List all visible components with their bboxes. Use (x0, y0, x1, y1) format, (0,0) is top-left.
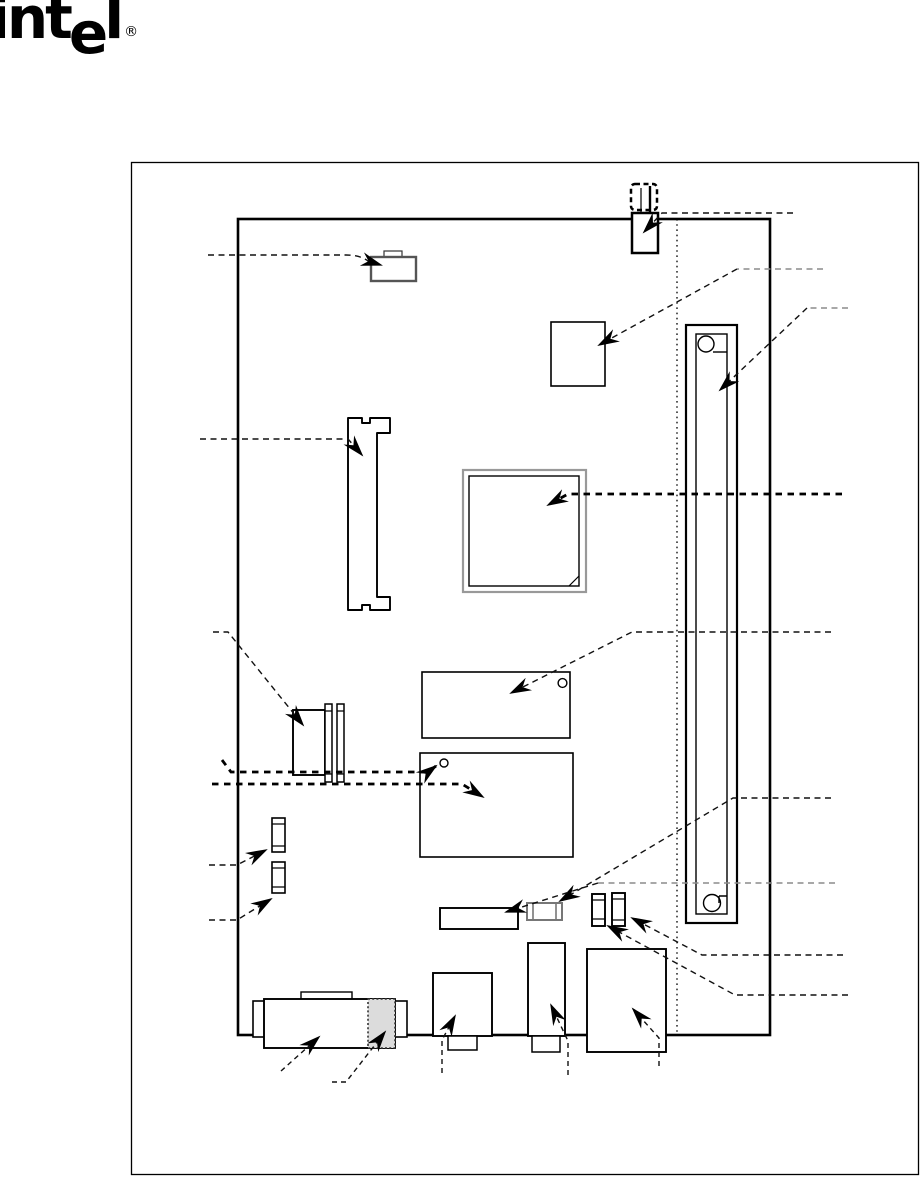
slot-inner (696, 334, 727, 914)
floppy-bar-2 (337, 704, 344, 782)
flash-chip (422, 672, 570, 738)
jumper-1-body (592, 894, 605, 926)
flash-chip-body (422, 672, 570, 738)
capacitor-1-body (272, 818, 285, 852)
document-page: intel® (0, 0, 921, 1177)
controller-chip-body (420, 753, 573, 857)
controller-chip (420, 753, 573, 857)
shaded-connector-section (368, 999, 395, 1048)
floppy-body (293, 710, 325, 775)
jumper-1 (592, 894, 605, 926)
slot-key-bottom (704, 895, 721, 912)
speaker-body (371, 257, 416, 281)
front-panel-header (440, 908, 518, 929)
rear-connector-1-tab (448, 1036, 477, 1050)
capacitor-2 (272, 862, 285, 893)
rear-connector-3 (587, 949, 666, 1052)
ir-header (527, 903, 562, 920)
rear-connector-2-tab (532, 1036, 560, 1052)
board-diagram (0, 0, 921, 1177)
slot-key-top (698, 336, 714, 352)
rear-connector-1-body (433, 973, 492, 1036)
floppy-bar-1 (325, 704, 332, 782)
rear-connector-2 (528, 943, 565, 1052)
processor-chip (463, 470, 586, 592)
flash-chip-pin1-dot (558, 679, 567, 688)
battery-body (632, 213, 658, 253)
capacitor-2-body (272, 862, 285, 893)
stacked-rear-connector (253, 992, 407, 1048)
floppy-connector (293, 704, 344, 782)
expansion-slot (686, 325, 737, 923)
rear-connector-1 (433, 973, 492, 1050)
jumper-2-body (612, 893, 625, 926)
battery-dashed-outline (631, 184, 657, 210)
controller-chip-pin1-dot (440, 759, 448, 767)
capacitor-1 (272, 818, 285, 852)
jumper-2 (612, 893, 625, 926)
processor-inner (469, 476, 579, 586)
battery-holder (631, 184, 658, 253)
square-chip (551, 322, 605, 386)
